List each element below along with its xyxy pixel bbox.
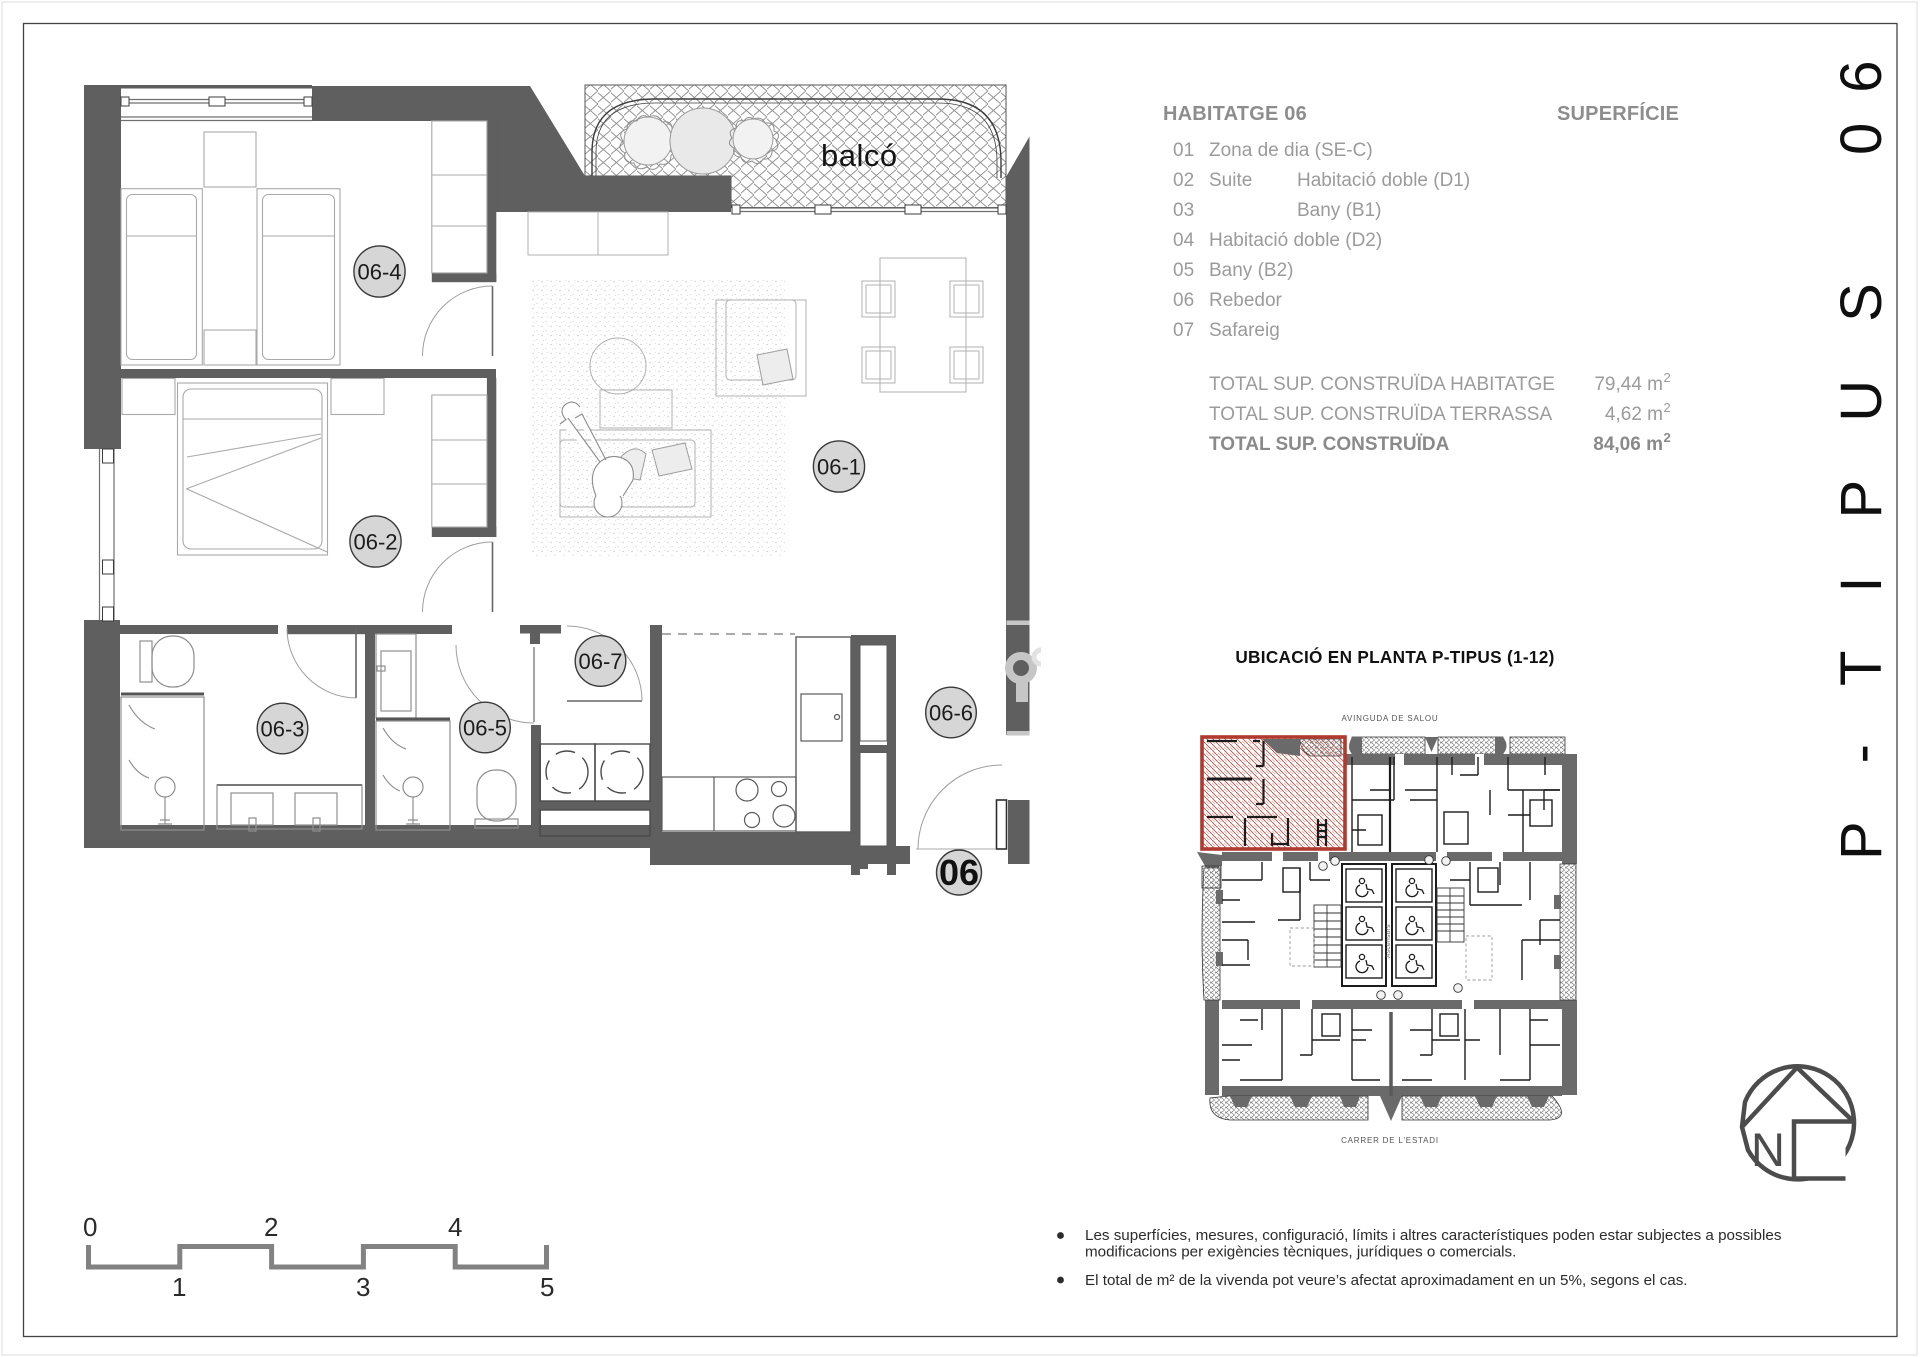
svg-text:Les superfícies, mesures, conf: Les superfícies, mesures, configuració, … bbox=[1085, 1227, 1782, 1244]
svg-text:Habitació doble (D1): Habitació doble (D1) bbox=[1297, 170, 1470, 191]
svg-text:84,06 m: 84,06 m bbox=[1593, 434, 1663, 455]
svg-text:Bany (B1): Bany (B1) bbox=[1297, 200, 1381, 221]
svg-text:Ascensors: Ascensors bbox=[1385, 924, 1392, 958]
svg-text:1: 1 bbox=[172, 1272, 186, 1302]
svg-text:N: N bbox=[1751, 1123, 1785, 1176]
svg-text:Suite: Suite bbox=[1209, 170, 1252, 191]
svg-text:Rebedor: Rebedor bbox=[1209, 290, 1283, 311]
svg-text:06-6: 06-6 bbox=[929, 701, 973, 726]
svg-text:03: 03 bbox=[1173, 200, 1194, 221]
svg-text:06-4: 06-4 bbox=[357, 260, 401, 285]
svg-text:2: 2 bbox=[1664, 430, 1671, 445]
svg-text:06-5: 06-5 bbox=[463, 716, 507, 741]
svg-text:06-3: 06-3 bbox=[260, 717, 304, 742]
svg-text:2: 2 bbox=[1664, 370, 1671, 385]
svg-text:06: 06 bbox=[939, 852, 979, 893]
svg-text:02: 02 bbox=[1173, 170, 1194, 191]
svg-text:06-1: 06-1 bbox=[817, 455, 861, 480]
svg-text:AVINGUDA DE SALOU: AVINGUDA DE SALOU bbox=[1341, 714, 1438, 723]
svg-text:5: 5 bbox=[540, 1272, 554, 1302]
svg-text:Zona de dia (SE-C): Zona de dia (SE-C) bbox=[1209, 140, 1373, 161]
svg-text:P-TIPUS: P-TIPUS bbox=[1829, 225, 1894, 860]
svg-text:balcó: balcó bbox=[821, 138, 898, 173]
svg-text:modificacions per exigències t: modificacions per exigències tècniques, … bbox=[1085, 1244, 1516, 1261]
svg-text:UBICACIÓ EN PLANTA P-TIPUS (1-: UBICACIÓ EN PLANTA P-TIPUS (1-12) bbox=[1235, 647, 1554, 667]
svg-text:06-7: 06-7 bbox=[578, 649, 622, 674]
svg-text:06: 06 bbox=[1173, 290, 1194, 311]
svg-text:CARRER DE L’ESTADI: CARRER DE L’ESTADI bbox=[1341, 1136, 1439, 1145]
svg-text:El total de m² de la vivenda p: El total de m² de la vivenda pot veure’s… bbox=[1085, 1272, 1688, 1289]
svg-text:06-2: 06-2 bbox=[353, 530, 397, 555]
svg-text:TOTAL SUP. CONSTRUÏDA HABITATG: TOTAL SUP. CONSTRUÏDA HABITATGE bbox=[1209, 374, 1555, 395]
svg-text:SUPERFÍCIE: SUPERFÍCIE bbox=[1557, 102, 1679, 125]
svg-text:79,44 m: 79,44 m bbox=[1594, 374, 1663, 395]
svg-text:4: 4 bbox=[448, 1212, 462, 1242]
svg-text:2: 2 bbox=[1664, 400, 1671, 415]
svg-text:Habitació doble (D2): Habitació doble (D2) bbox=[1209, 230, 1382, 251]
svg-text:07: 07 bbox=[1173, 320, 1194, 341]
svg-text:HABITATGE 06: HABITATGE 06 bbox=[1163, 103, 1307, 125]
svg-text:01: 01 bbox=[1173, 140, 1194, 161]
svg-text:04: 04 bbox=[1173, 230, 1195, 251]
svg-text:Bany (B2): Bany (B2) bbox=[1209, 260, 1293, 281]
svg-text:3: 3 bbox=[356, 1272, 370, 1302]
svg-text:06: 06 bbox=[1829, 30, 1894, 155]
svg-text:TOTAL SUP. CONSTRUÏDA TERRASSA: TOTAL SUP. CONSTRUÏDA TERRASSA bbox=[1209, 404, 1552, 425]
svg-text:TOTAL SUP. CONSTRUÏDA: TOTAL SUP. CONSTRUÏDA bbox=[1209, 434, 1450, 455]
svg-text:Safareig: Safareig bbox=[1209, 320, 1280, 341]
svg-text:05: 05 bbox=[1173, 260, 1194, 281]
svg-text:0: 0 bbox=[83, 1212, 97, 1242]
svg-text:2: 2 bbox=[264, 1212, 278, 1242]
svg-text:4,62 m: 4,62 m bbox=[1605, 404, 1663, 425]
